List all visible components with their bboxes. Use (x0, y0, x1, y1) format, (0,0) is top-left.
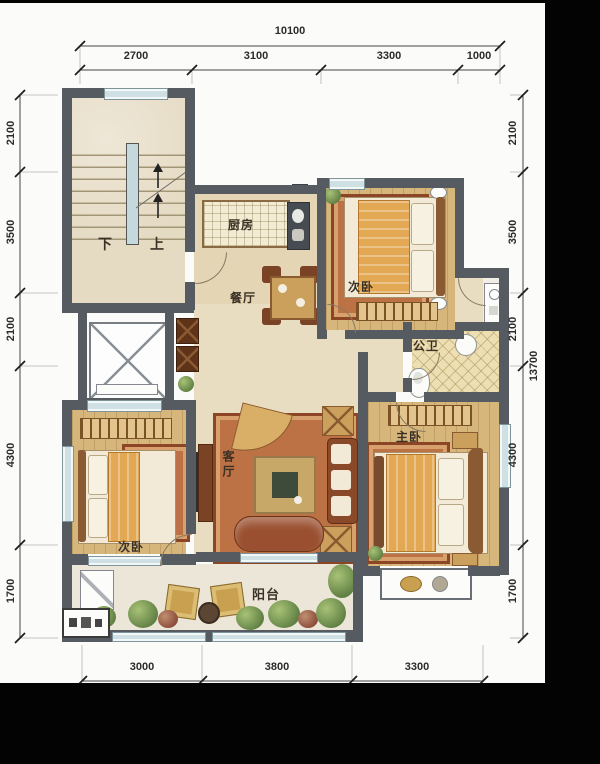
window (329, 178, 365, 190)
dim-bottom-seg-2: 3800 (265, 661, 289, 673)
wall (358, 352, 368, 392)
wall (455, 178, 464, 277)
dim-right-seg-5: 1700 (507, 579, 519, 603)
dim-top-seg-2: 3100 (244, 50, 268, 62)
photo-border (545, 0, 600, 764)
room-label-bedroom-top: 次卧 (348, 278, 374, 295)
room-label-dining: 餐厅 (230, 289, 256, 306)
wall (499, 268, 509, 424)
dim-left-seg-5: 1700 (5, 579, 17, 603)
wall (185, 88, 195, 252)
dim-top-total: 10100 (275, 25, 306, 37)
dim-left-seg-2: 3500 (5, 220, 17, 244)
wall (317, 330, 327, 339)
wall (455, 322, 509, 331)
wall (403, 322, 412, 352)
dim-bottom-seg-1: 3000 (130, 661, 154, 673)
wall (424, 392, 500, 402)
wall (165, 313, 174, 408)
wall (403, 378, 412, 392)
wall (196, 552, 240, 562)
wall (186, 400, 196, 534)
dim-left-seg-1: 2100 (5, 121, 17, 145)
wall (317, 178, 329, 188)
room-label-bedroom-left: 次卧 (118, 538, 144, 555)
window (88, 556, 162, 566)
wall (78, 313, 87, 408)
stair-label-up: 上 (150, 234, 165, 254)
wall (62, 400, 72, 446)
dim-right-total: 13700 (528, 351, 540, 382)
wall (317, 185, 326, 339)
dim-left-seg-3: 2100 (5, 317, 17, 341)
room-label-living: 客厅 (220, 450, 237, 480)
corner-stamp (62, 608, 110, 638)
wall (358, 392, 368, 566)
dim-bottom-seg-3: 3300 (405, 661, 429, 673)
wall (194, 185, 325, 194)
room-label-balcony: 阳台 (252, 584, 280, 603)
room-label-bathroom: 公卫 (413, 337, 439, 354)
dim-left-seg-4: 4300 (5, 443, 17, 467)
room-label-kitchen: 厨房 (228, 216, 254, 233)
window (87, 400, 162, 412)
wall (62, 303, 194, 313)
photo-border (0, 683, 600, 764)
dim-right-seg-2: 3500 (507, 220, 519, 244)
window (212, 632, 346, 642)
sliding-door (240, 553, 318, 563)
window (62, 446, 74, 522)
wall (363, 178, 464, 188)
wall (468, 566, 500, 576)
dim-top-seg-1: 2700 (124, 50, 148, 62)
wall (353, 554, 363, 642)
floor-plan: 10100 2700 3100 3300 1000 2100 3500 2100… (0, 0, 600, 764)
wall (62, 88, 72, 313)
wall (499, 486, 509, 575)
dim-right-seg-1: 2100 (507, 121, 519, 145)
room-label-master: 主卧 (396, 428, 422, 445)
dim-top-seg-4: 1000 (467, 50, 491, 62)
photo-border (0, 0, 600, 3)
dimension-lines (0, 0, 600, 764)
dim-right-seg-3: 2100 (507, 317, 519, 341)
window (112, 632, 206, 642)
window (104, 88, 168, 100)
dim-top-seg-3: 3300 (377, 50, 401, 62)
stair-label-down: 下 (98, 234, 113, 254)
dim-right-seg-4: 4300 (507, 443, 519, 467)
